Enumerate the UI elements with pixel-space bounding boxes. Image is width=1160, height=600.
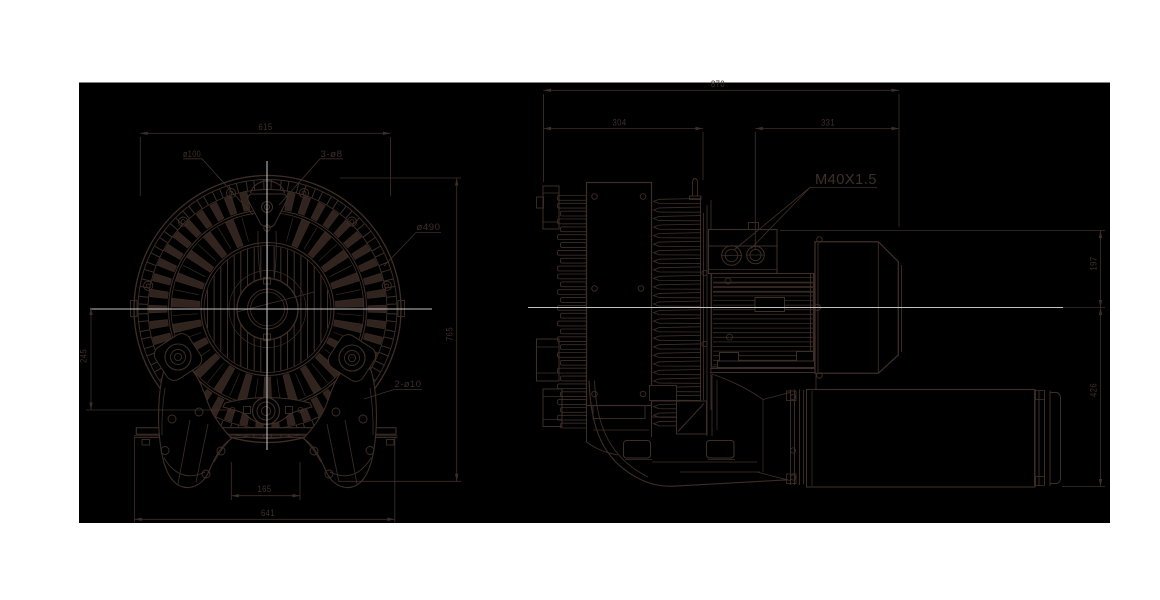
- svg-text:615: 615: [259, 122, 273, 133]
- svg-text:165: 165: [258, 484, 272, 495]
- svg-text:ø100: ø100: [183, 149, 201, 160]
- svg-text:641: 641: [261, 508, 275, 519]
- svg-text:331: 331: [821, 118, 835, 129]
- svg-text:197: 197: [1089, 257, 1100, 271]
- svg-text:3-ø8: 3-ø8: [321, 149, 343, 160]
- svg-text:304: 304: [613, 118, 627, 129]
- svg-text:2-ø10: 2-ø10: [395, 379, 422, 390]
- svg-text:ø490: ø490: [417, 222, 441, 233]
- svg-text:870: 870: [711, 79, 725, 90]
- svg-text:765: 765: [444, 327, 455, 341]
- svg-text:M40X1.5: M40X1.5: [815, 172, 877, 188]
- svg-text:245: 245: [79, 349, 90, 363]
- svg-text:426: 426: [1089, 383, 1100, 397]
